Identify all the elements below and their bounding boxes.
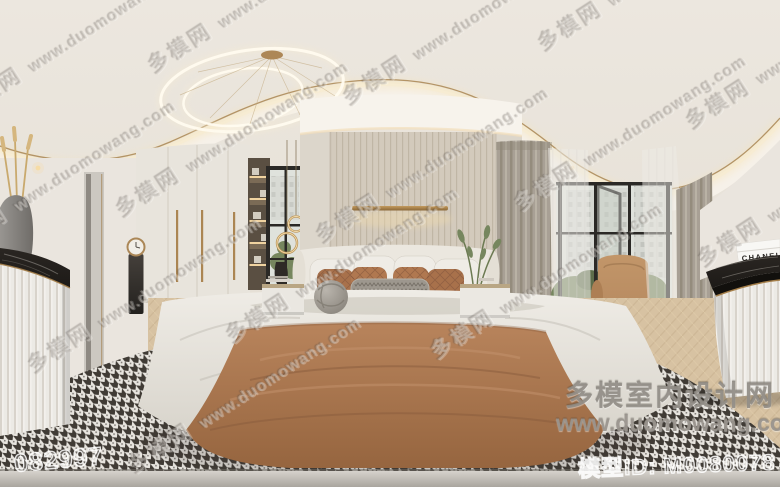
scene-artwork: CHANEL (0, 0, 780, 487)
wardrobe (136, 143, 250, 304)
panorama-bedroom-render: CHANEL 多模网www.duomowang.com 多模网www.duomo… (0, 0, 780, 487)
knot-ball-pillow (314, 280, 348, 314)
pedestal-clock (128, 239, 145, 315)
bottom-edge-band (0, 469, 780, 487)
wall-lamp (352, 206, 448, 211)
